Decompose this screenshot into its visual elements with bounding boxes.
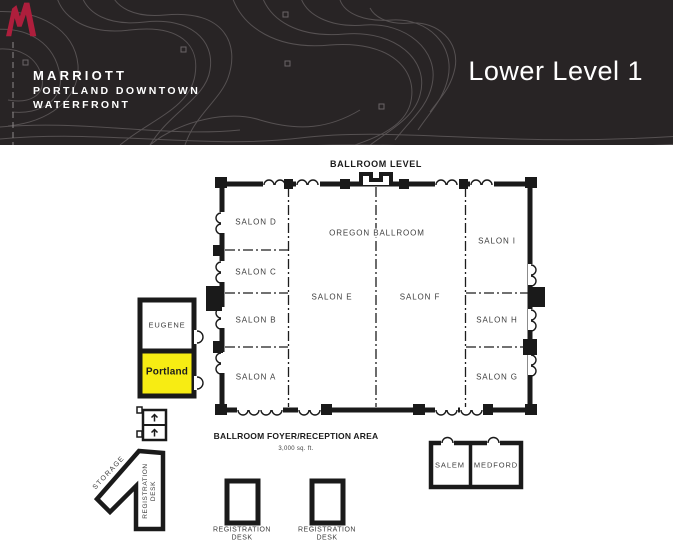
page-title: Lower Level 1	[468, 56, 643, 87]
room-label-portland: Portland	[146, 367, 188, 378]
room-label-salon-f: SALON F	[400, 293, 441, 302]
room-label-eugene: EUGENE	[148, 321, 185, 330]
room-label-salon-c: SALON C	[235, 268, 276, 277]
brand-text: MARRIOTT PORTLAND DOWNTOWN WATERFRONT	[33, 68, 200, 111]
registration-desk-2	[312, 481, 343, 523]
room-label-salon-h: SALON H	[476, 316, 517, 325]
level-title: BALLROOM LEVEL	[330, 159, 422, 169]
room-label-salon-d: SALON D	[235, 218, 276, 227]
brand-name: MARRIOTT	[33, 68, 200, 83]
room-label-salon-b: SALON B	[236, 316, 277, 325]
room-label-salon-i: SALON I	[478, 237, 516, 246]
room-label-oregon-ballroom: OREGON BALLROOM	[326, 229, 428, 238]
room-label-salon-e: SALON E	[312, 293, 353, 302]
room-label-salon-g: SALON G	[476, 373, 518, 382]
registration-desk-rotated-label: REGISTRATION DESK	[142, 460, 158, 522]
registration-desk-1	[227, 481, 258, 523]
foyer-title: BALLROOM FOYER/RECEPTION AREA	[214, 431, 379, 441]
room-label-medford: MEDFORD	[474, 461, 518, 470]
floorplan-page: MARRIOTT PORTLAND DOWNTOWN WATERFRONT Lo…	[0, 0, 673, 550]
ballroom-entry-bump	[361, 174, 391, 185]
elevator-icon	[137, 407, 166, 440]
room-label-salon-a: SALON A	[236, 373, 277, 382]
header-banner: MARRIOTT PORTLAND DOWNTOWN WATERFRONT Lo…	[0, 0, 673, 145]
room-label-salem: SALEM	[435, 461, 465, 470]
brand-line3: WATERFRONT	[33, 99, 200, 111]
marriott-logo-icon	[0, 0, 38, 38]
foyer-area: 3,000 sq. ft.	[278, 446, 313, 452]
registration-desk-2-label: REGISTRATION DESK	[287, 527, 367, 544]
registration-desk-1-label: REGISTRATION DESK	[202, 527, 282, 544]
brand-line2: PORTLAND DOWNTOWN	[33, 85, 200, 97]
